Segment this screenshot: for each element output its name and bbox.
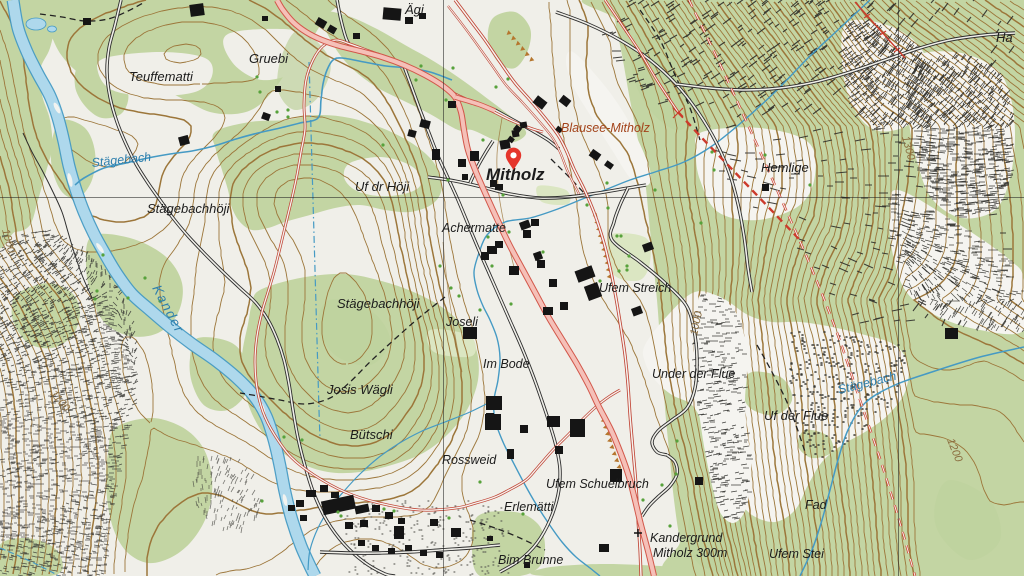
- svg-text:Stägebachhöji: Stägebachhöji: [147, 201, 231, 216]
- svg-text:Rossweid: Rossweid: [442, 453, 497, 467]
- svg-text:Stägebachhöji: Stägebachhöji: [337, 296, 421, 311]
- svg-text:Erlemätti: Erlemätti: [504, 500, 555, 514]
- svg-text:Under der Flue: Under der Flue: [652, 367, 735, 381]
- svg-text:Joseli: Joseli: [445, 315, 479, 329]
- svg-text:Achermatte: Achermatte: [441, 221, 506, 235]
- svg-text:Ufem Stei: Ufem Stei: [769, 547, 825, 561]
- svg-text:Fad: Fad: [805, 498, 828, 512]
- svg-text:Gruebi: Gruebi: [249, 51, 289, 66]
- svg-text:Ufem Schuelbruch: Ufem Schuelbruch: [546, 477, 649, 491]
- svg-text:Uf der Flue: Uf der Flue: [764, 408, 828, 423]
- svg-text:Im Bode: Im Bode: [483, 357, 530, 371]
- svg-text:Blausee-Mitholz: Blausee-Mitholz: [561, 121, 651, 135]
- svg-text:Ha: Ha: [996, 30, 1013, 45]
- svg-text:Josis Wägli: Josis Wägli: [326, 382, 394, 397]
- svg-text:Ufem Streich: Ufem Streich: [599, 281, 671, 295]
- svg-text:Ägi: Ägi: [404, 2, 425, 17]
- svg-text:Bütschi: Bütschi: [350, 427, 394, 442]
- svg-text:Uf dr Höji: Uf dr Höji: [355, 179, 410, 194]
- svg-text:Kandergrund: Kandergrund: [650, 531, 723, 545]
- svg-text:Teuffematti: Teuffematti: [129, 69, 194, 84]
- svg-text:Mitholz 300m: Mitholz 300m: [653, 546, 727, 560]
- svg-text:Hemlige: Hemlige: [761, 160, 809, 175]
- svg-text:Mitholz: Mitholz: [486, 165, 545, 184]
- svg-text:Bim Brunne: Bim Brunne: [498, 553, 563, 567]
